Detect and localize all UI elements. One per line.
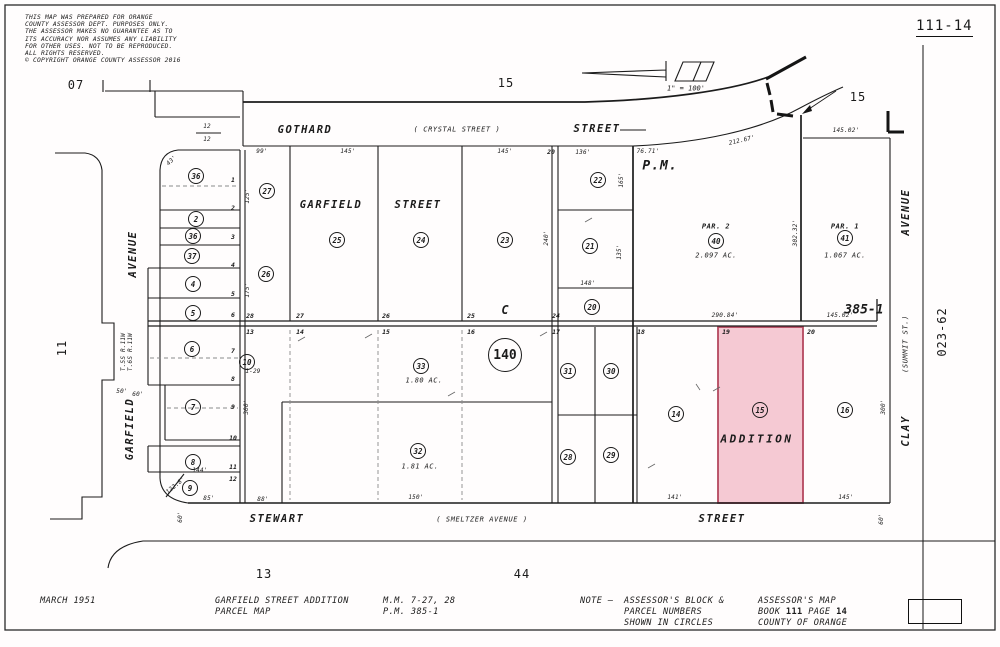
disclaimer-line: ITS ACCURACY NOR ASSUMES ANY LIABILITY — [25, 36, 181, 43]
page-border — [5, 5, 995, 630]
map-recording-ref2: P.M. 385-1 — [383, 607, 439, 618]
note-prefix: NOTE — — [580, 596, 613, 607]
heavy-boundary-marks — [766, 57, 904, 132]
disclaimer-line: ALL RIGHTS RESERVED. — [25, 50, 181, 57]
disclaimer-text: THIS MAP WAS PREPARED FOR ORANGE COUNTY … — [25, 14, 181, 64]
map-book-page-ref: 111-14 — [916, 18, 973, 37]
page-label: PAGE — [808, 607, 830, 617]
page-number: 14 — [836, 607, 847, 617]
map-title-line1: GARFIELD STREET ADDITION — [215, 596, 349, 607]
north-arrow-icon — [582, 61, 714, 81]
stamp-box — [908, 599, 962, 624]
assessor-map-line1: ASSESSOR'S MAP — [758, 596, 836, 607]
dashed-lot-lines — [150, 186, 462, 500]
map-recording-ref1: M.M. 7-27, 28 — [383, 596, 455, 607]
note-line2: PARCEL NUMBERS — [624, 607, 702, 618]
assessor-map-page: GOTHARD( CRYSTAL STREET )STREETGARFIELDS… — [0, 0, 1000, 647]
assessor-map-line2: BOOK 111 PAGE 14 — [758, 607, 847, 618]
disclaimer-line: THE ASSESSOR MAKES NO GUARANTEE AS TO — [25, 28, 181, 35]
note-line1: ASSESSOR'S BLOCK & — [624, 596, 724, 607]
leader-arrow — [802, 91, 836, 114]
note-line3: SHOWN IN CIRCLES — [624, 618, 713, 629]
assessor-map-line3: COUNTY OF ORANGE — [758, 618, 847, 629]
survey-ticks — [298, 218, 720, 468]
disclaimer-line: COUNTY ASSESSOR DEPT. PURPOSES ONLY. — [25, 21, 181, 28]
disclaimer-line: © COPYRIGHT ORANGE COUNTY ASSESSOR 2016 — [25, 57, 181, 64]
disclaimer-line: THIS MAP WAS PREPARED FOR ORANGE — [25, 14, 181, 21]
parcel-lines — [50, 77, 995, 568]
map-date: MARCH 1951 — [40, 596, 96, 607]
highlighted-parcel-15[interactable] — [718, 327, 803, 503]
parcel-map-canvas — [0, 0, 1000, 647]
disclaimer-line: FOR OTHER USES. NOT TO BE REPRODUCED. — [25, 43, 181, 50]
book-number: 111 — [786, 607, 803, 617]
book-label: BOOK — [758, 607, 780, 617]
map-title-line2: PARCEL MAP — [215, 607, 271, 618]
